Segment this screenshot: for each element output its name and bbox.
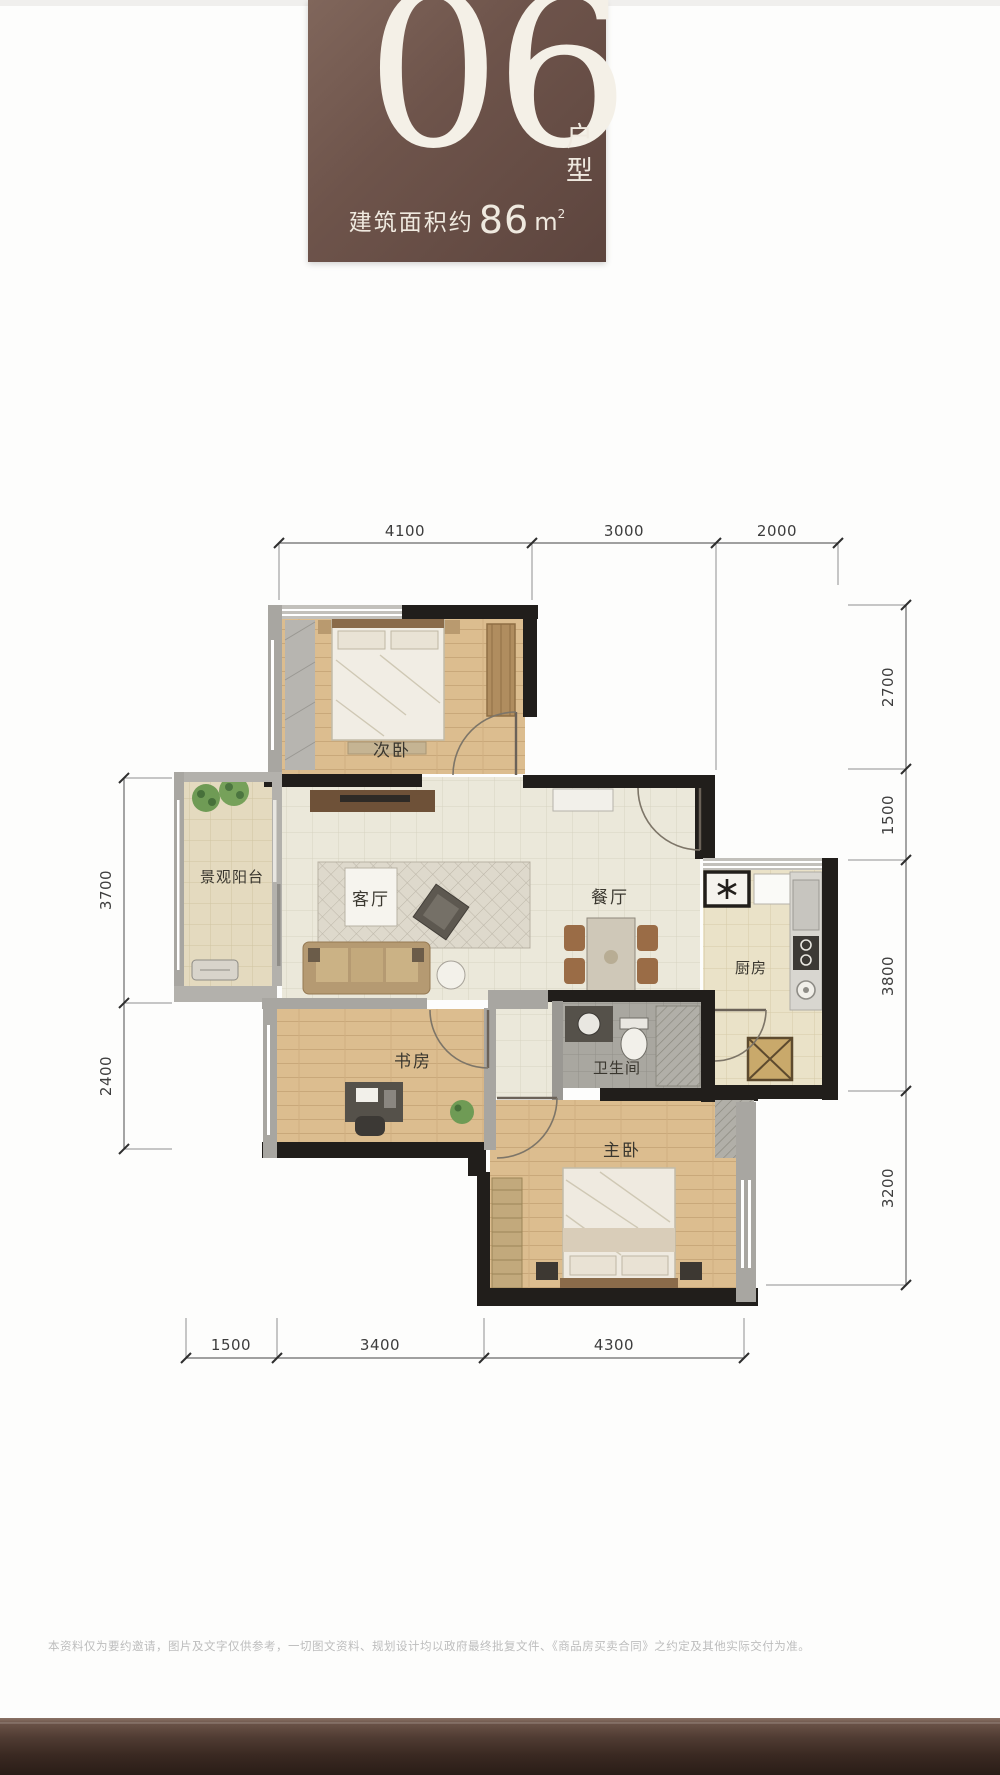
- sofa-cushion: [351, 948, 383, 982]
- kitchen-cabinet: [754, 874, 790, 904]
- area-line: 建筑面积约 86 m2: [308, 198, 606, 242]
- plant-leaf: [236, 791, 244, 799]
- area-label: 建筑面积约: [349, 210, 474, 236]
- dining-centerpiece: [604, 950, 618, 964]
- label-bathroom: 卫生间: [593, 1059, 641, 1077]
- desk-monitor: [384, 1090, 396, 1108]
- master-pillow: [622, 1256, 668, 1275]
- dim-right-2: 1500: [879, 795, 897, 835]
- plant-leaf: [455, 1105, 462, 1112]
- bedroom2-nightstand-right: [444, 620, 460, 634]
- master-wardrobe: [492, 1178, 522, 1288]
- bedroom2-pillow: [338, 631, 385, 649]
- disclaimer-text: 本资料仅为要约邀请，图片及文字仅供参考，一切图文资料、规划设计均以政府最终批复文…: [48, 1638, 948, 1654]
- plant-leaf: [208, 798, 216, 806]
- sofa-pillow: [308, 948, 320, 962]
- area-unit: m: [534, 208, 557, 236]
- tv-icon: [340, 795, 410, 802]
- dim-bottom-2: 3400: [360, 1336, 400, 1354]
- floor-threshold: [422, 777, 523, 789]
- dining-chair: [564, 958, 585, 984]
- kitchen-upper-cabinet: [793, 880, 819, 930]
- dim-top-2: 3000: [604, 522, 644, 540]
- dimension-left: 3700 2400: [97, 773, 172, 1154]
- toilet-tank: [620, 1018, 648, 1029]
- label-kitchen: 厨房: [735, 959, 767, 977]
- area-value: 86: [479, 198, 529, 242]
- sofa-cushion: [316, 948, 348, 982]
- plant-leaf: [225, 783, 233, 791]
- bedroom2-pillow: [391, 631, 438, 649]
- desk-chair: [355, 1116, 385, 1136]
- floor-hall: [496, 998, 552, 1098]
- unit-header-plate: 06 户型 建筑面积约 86 m2: [308, 0, 606, 262]
- side-table: [437, 961, 465, 989]
- master-blanket: [563, 1228, 675, 1252]
- dim-right-4: 3200: [879, 1168, 897, 1208]
- bedroom2-headboard: [332, 618, 444, 628]
- shower-area: [656, 1006, 700, 1086]
- label-dining: 餐厅: [591, 888, 629, 908]
- dim-left-1: 3700: [97, 870, 115, 910]
- label-study: 书房: [394, 1052, 432, 1072]
- dim-right-3: 3800: [879, 956, 897, 996]
- plant-icon: [192, 784, 220, 812]
- dim-top-3: 2000: [757, 522, 797, 540]
- area-exponent: 2: [558, 207, 566, 221]
- dim-bottom-3: 4300: [594, 1336, 634, 1354]
- dim-top-1: 4100: [385, 522, 425, 540]
- label-balcony: 景观阳台: [200, 868, 264, 886]
- master-nightstand: [680, 1262, 702, 1280]
- dining-chair: [637, 958, 658, 984]
- label-master: 主卧: [603, 1141, 641, 1161]
- label-bedroom2: 次卧: [373, 741, 411, 761]
- footer-bar: [0, 1718, 1000, 1775]
- toilet-icon: [621, 1028, 647, 1060]
- master-headboard: [560, 1278, 678, 1289]
- washbasin-icon: [578, 1013, 600, 1035]
- plant-leaf: [197, 790, 205, 798]
- laptop-icon: [356, 1088, 378, 1102]
- dim-left-2: 2400: [97, 1056, 115, 1096]
- dim-bottom-1: 1500: [211, 1336, 251, 1354]
- dim-right-1: 2700: [879, 667, 897, 707]
- dining-chair: [564, 925, 585, 951]
- master-pillow: [570, 1256, 616, 1275]
- sofa-pillow: [412, 948, 424, 962]
- label-living: 客厅: [352, 890, 390, 910]
- floor-plan: 次卧 景观阳台 客厅 餐厅 厨房 卫生间 书房 主卧 4100 3000 200…: [0, 430, 1000, 1390]
- footer-gloss: [0, 1722, 1000, 1724]
- page: 06 户型 建筑面积约 86 m2: [0, 0, 1000, 1775]
- dining-chair: [637, 925, 658, 951]
- entry-cabinet: [553, 789, 613, 811]
- sink-drain: [803, 987, 809, 993]
- dimension-bottom: 1500 3400 4300: [181, 1318, 749, 1363]
- plant-icon: [450, 1100, 474, 1124]
- unit-type-label: 户型: [557, 122, 596, 190]
- master-nightstand: [536, 1262, 558, 1280]
- bedroom2-feature-wall: [285, 620, 315, 770]
